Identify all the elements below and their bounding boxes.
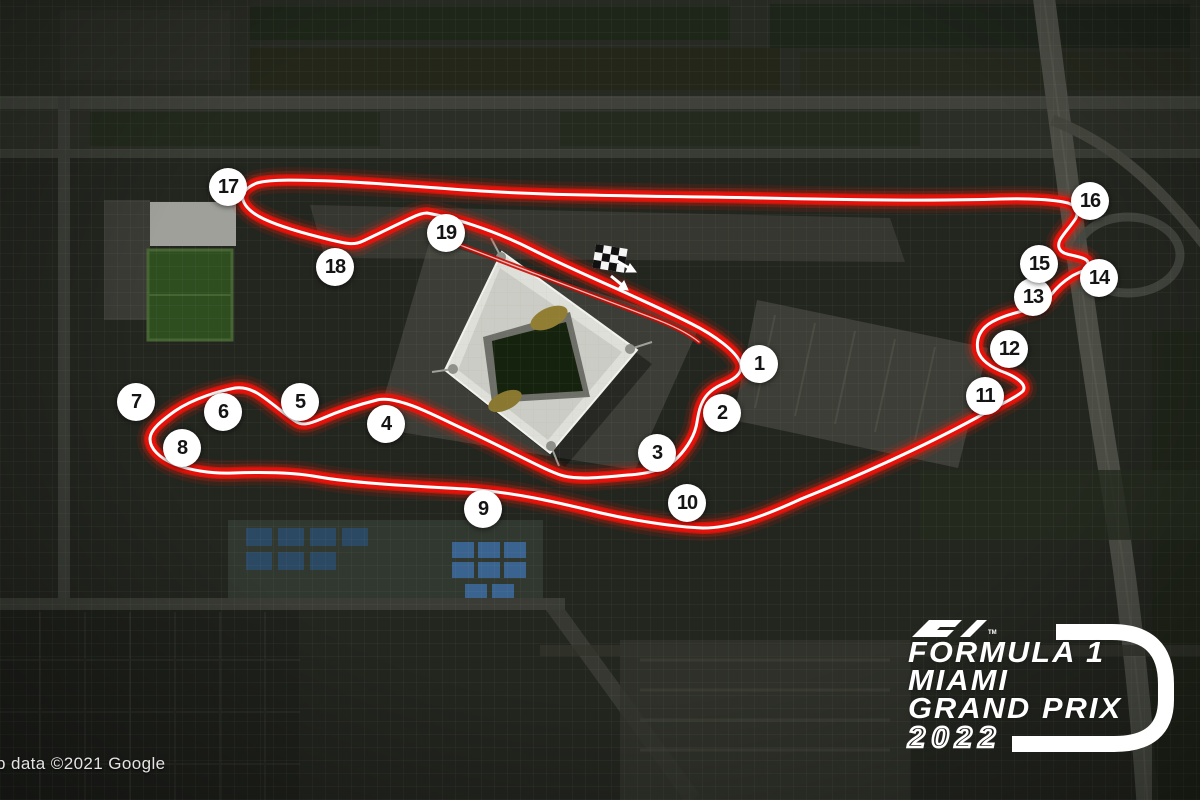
turn-marker-7: 7 bbox=[117, 383, 155, 421]
logo-line-miami: MIAMI bbox=[908, 667, 1009, 695]
turn-marker-10: 10 bbox=[668, 484, 706, 522]
turn-marker-2: 2 bbox=[703, 394, 741, 432]
trademark-label: TM bbox=[988, 630, 997, 636]
turn-marker-19: 19 bbox=[427, 214, 465, 252]
turn-marker-14: 14 bbox=[1080, 259, 1118, 297]
turn-marker-9: 9 bbox=[464, 490, 502, 528]
logo-line-formula1: FORMULA 1 bbox=[908, 639, 1105, 667]
turn-marker-12: 12 bbox=[990, 330, 1028, 368]
event-logo: TM FORMULA 1 MIAMI GRAND PRIX 2022 bbox=[880, 600, 1200, 800]
turn-marker-4: 4 bbox=[367, 405, 405, 443]
turn-marker-13: 13 bbox=[1014, 278, 1052, 316]
turn-marker-6: 6 bbox=[204, 393, 242, 431]
map-attribution: p data ©2021 Google bbox=[0, 754, 165, 774]
turn-marker-17: 17 bbox=[209, 168, 247, 206]
turn-marker-11: 11 bbox=[966, 377, 1004, 415]
logo-line-grand-prix: GRAND PRIX bbox=[908, 695, 1122, 723]
turn-marker-18: 18 bbox=[316, 248, 354, 286]
miami-gp-circuit-map: 12345678910111213141516171819 TM FORMULA… bbox=[0, 0, 1200, 800]
turn-marker-16: 16 bbox=[1071, 182, 1109, 220]
turn-marker-1: 1 bbox=[740, 345, 778, 383]
turn-marker-3: 3 bbox=[638, 434, 676, 472]
logo-year: 2022 bbox=[908, 724, 1002, 752]
f1-logo-icon bbox=[912, 620, 987, 637]
turn-marker-5: 5 bbox=[281, 383, 319, 421]
turn-marker-15: 15 bbox=[1020, 245, 1058, 283]
turn-marker-8: 8 bbox=[163, 429, 201, 467]
